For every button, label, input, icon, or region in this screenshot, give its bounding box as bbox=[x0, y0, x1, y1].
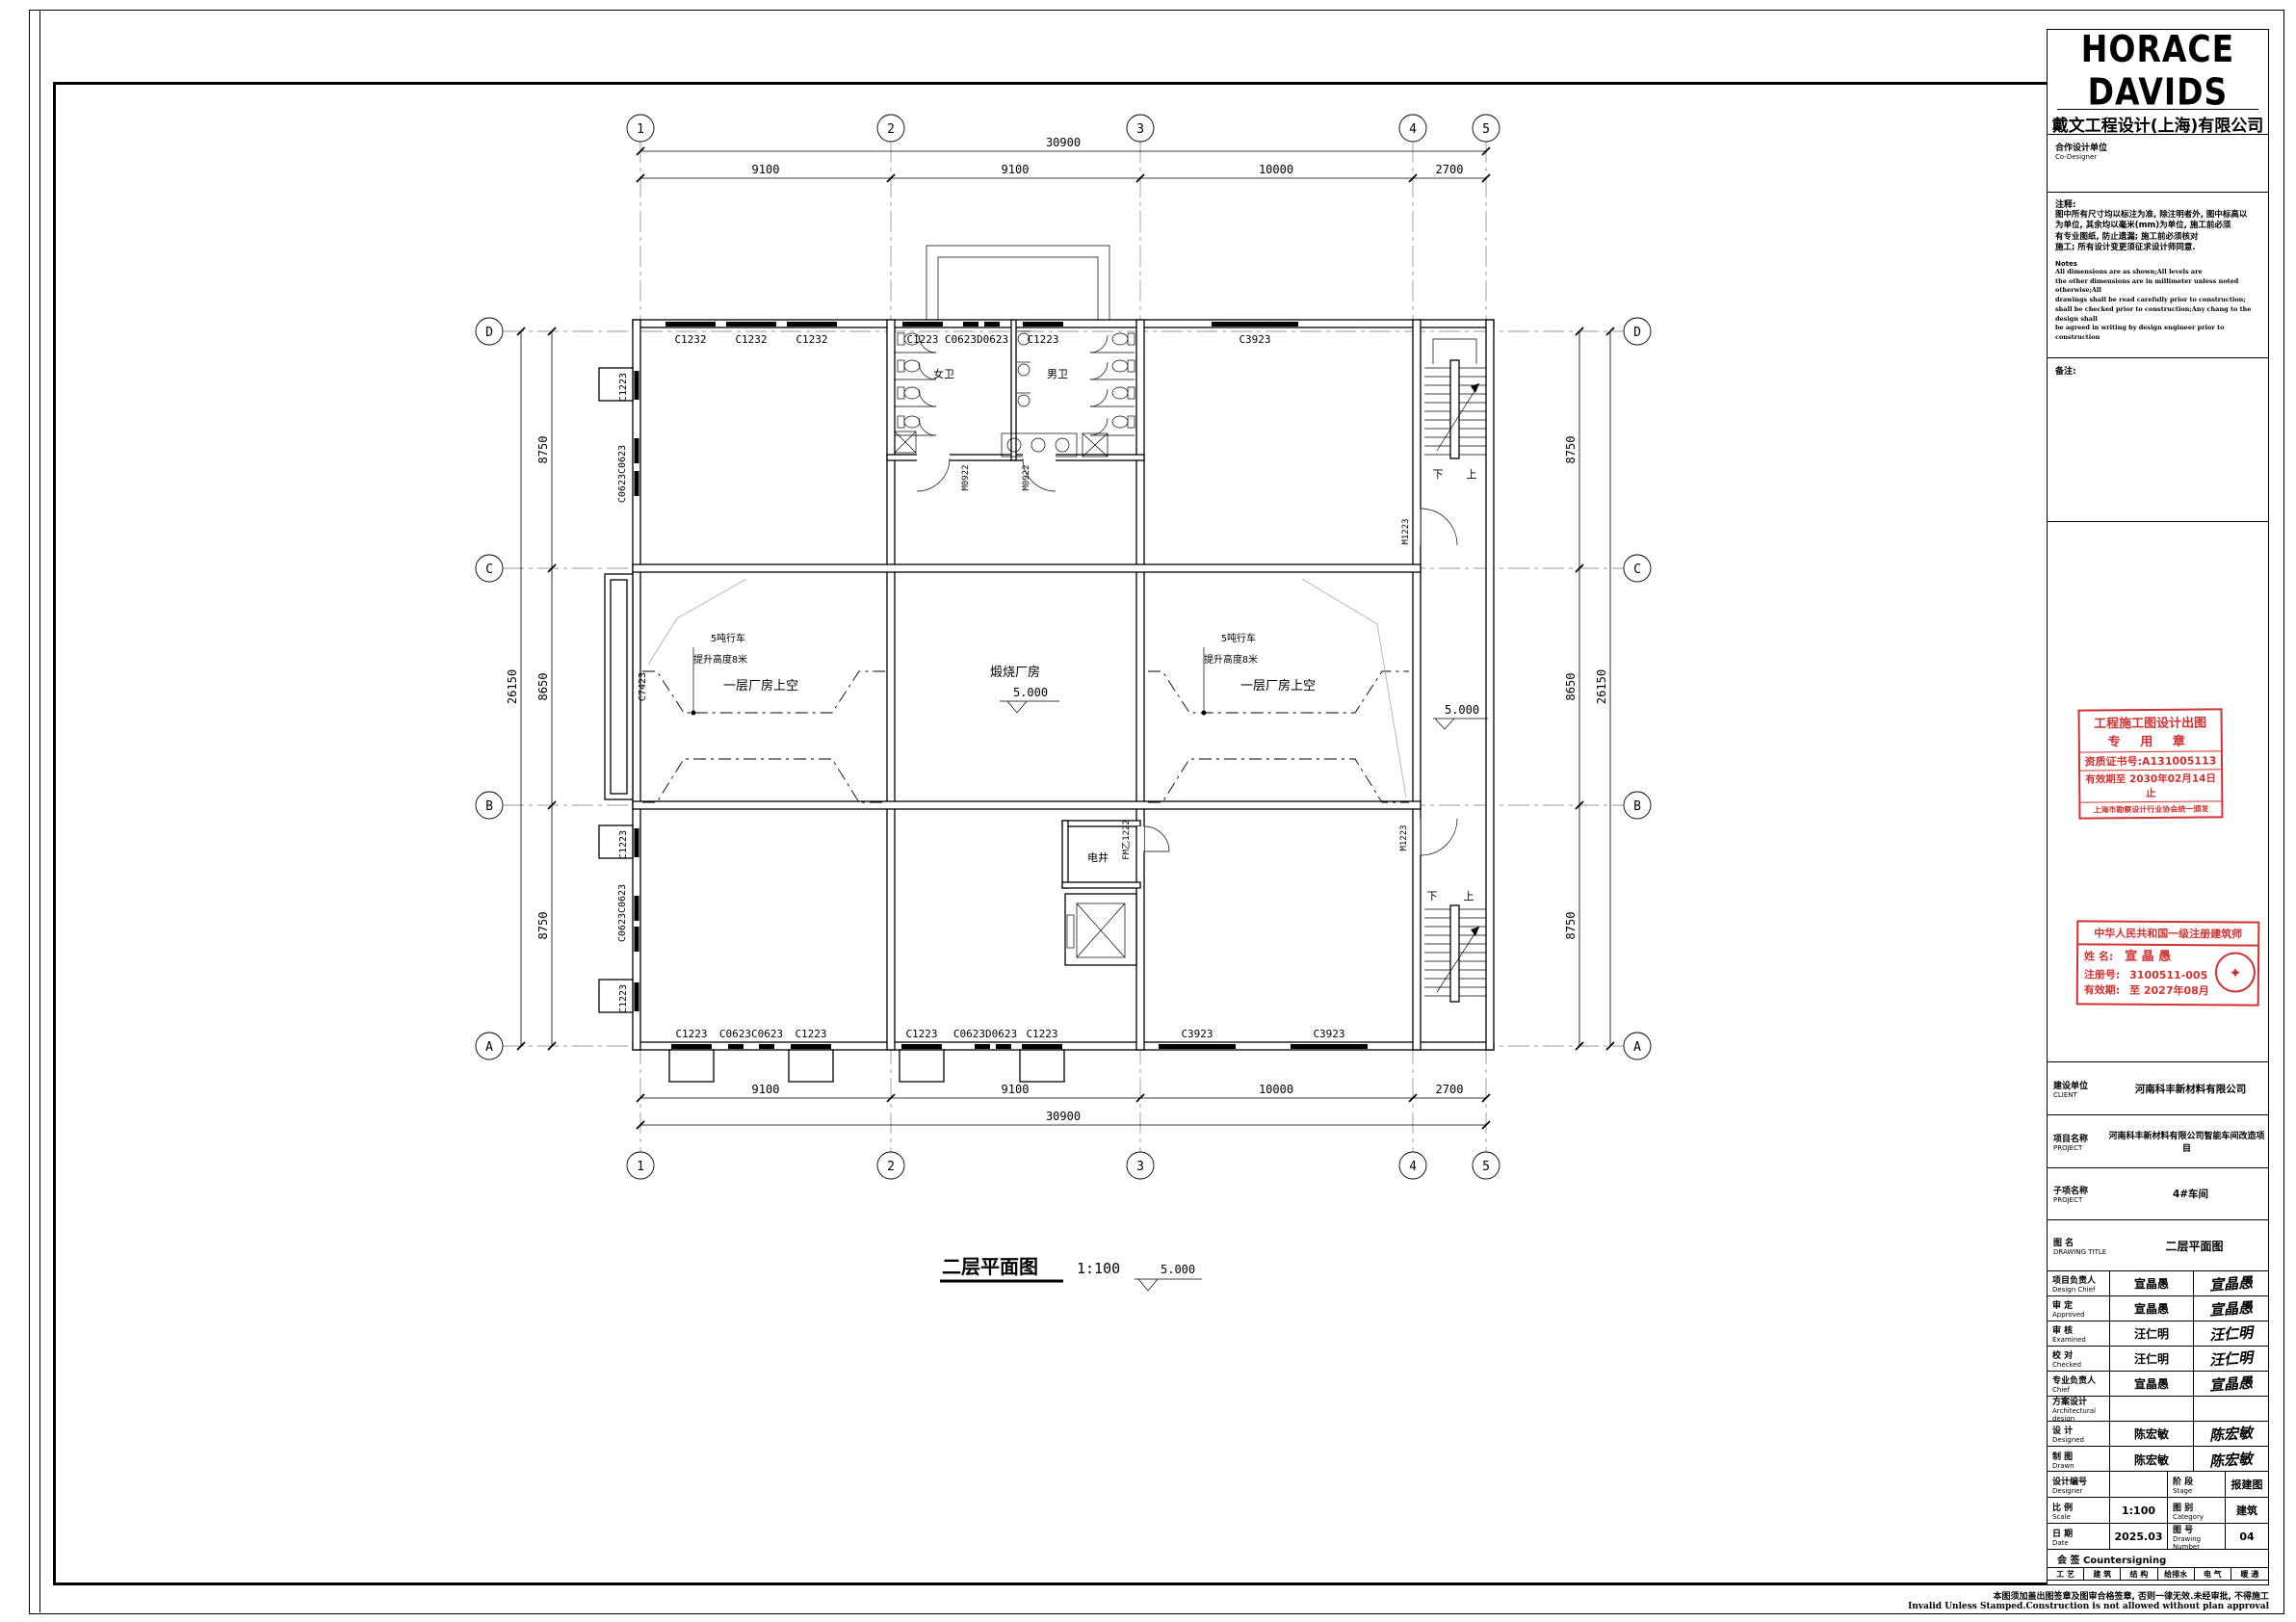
stamp1-line2: 专 用 章 bbox=[2080, 730, 2221, 751]
stamp2-valid: 至 2027年08月 bbox=[2129, 984, 2209, 998]
meta-value bbox=[2110, 1472, 2168, 1498]
crane-note: 5吨行车 bbox=[1221, 632, 1256, 644]
plan-scale: 1:100 bbox=[1077, 1260, 1120, 1277]
grid-bubble-label: A bbox=[485, 1040, 493, 1055]
crane-note: 5吨行车 bbox=[711, 632, 745, 644]
stair-bottom: 下 上 bbox=[1424, 890, 1486, 1002]
door-label: M1223 bbox=[1401, 518, 1411, 544]
notes-en-line: be agreed in writing by design engineer … bbox=[2055, 324, 2260, 343]
crane-room-right: 5吨行车 提升高度8米 一层厂房上空 bbox=[1148, 579, 1409, 802]
sign-label-cn: 方案设计 bbox=[2052, 1397, 2087, 1407]
sign-label-cn: 制 图 bbox=[2052, 1450, 2073, 1462]
door-label: M0922 bbox=[1022, 464, 1031, 490]
dim-label: 9100 bbox=[1002, 163, 1030, 176]
canopy-outline bbox=[926, 246, 1109, 324]
drawing-title-block: 图 名 DRAWING TITLE 二层平面图 bbox=[2047, 1220, 2269, 1271]
countersign-col: 给排水 bbox=[2158, 1568, 2195, 1581]
co-designer-label-cn: 合作设计单位 bbox=[2055, 141, 2260, 153]
dim-label: 26150 bbox=[1595, 669, 1608, 704]
meta-label-cn: 比 例 bbox=[2052, 1501, 2073, 1513]
countersign-col: 建 筑 bbox=[2084, 1568, 2121, 1581]
stair-top: 下 上 bbox=[1424, 339, 1486, 481]
room-label: 一层厂房上空 bbox=[723, 678, 798, 693]
window-label: C3923 bbox=[1313, 1028, 1344, 1040]
stamp2-name: 宣 晶 愚 bbox=[2125, 950, 2171, 964]
sign-label-en: Chief bbox=[2052, 1386, 2070, 1394]
countersign-title: 会 签 Countersigning bbox=[2048, 1550, 2268, 1567]
window-label: C7423 bbox=[638, 672, 648, 701]
window-label: C0623C0623 bbox=[719, 1028, 783, 1040]
stair-label: 下 bbox=[1433, 468, 1444, 481]
grid-bubble-label: 3 bbox=[1136, 122, 1144, 137]
stair-label: 上 bbox=[1464, 890, 1474, 903]
project-label-cn: 项目名称 bbox=[2053, 1132, 2105, 1144]
grid-bubble-label: 2 bbox=[887, 1160, 895, 1174]
sign-label-en: Approved bbox=[2052, 1311, 2085, 1319]
caption-level: 5.000 bbox=[1161, 1263, 1195, 1276]
subproject-block: 子项名称 PROJECT 4#车间 bbox=[2047, 1168, 2269, 1220]
footer-en: Invalid Unless Stamped.Construction is n… bbox=[1589, 1602, 2269, 1611]
window-label: C1223 bbox=[795, 1028, 826, 1040]
windows bbox=[599, 322, 1368, 1082]
signature: 宣晶愚 bbox=[2208, 1271, 2253, 1295]
plan-title: 二层平面图 bbox=[942, 1255, 1038, 1278]
company-name-cn: 戴文工程设计(上海)有限公司 bbox=[2048, 112, 2268, 136]
countersign-col: 结 构 bbox=[2121, 1568, 2157, 1581]
level-label: 5.000 bbox=[1013, 686, 1048, 699]
dim-label: 9100 bbox=[1002, 1083, 1030, 1096]
window-label: C1223 bbox=[1026, 1028, 1057, 1040]
room-label: 男卫 bbox=[1047, 368, 1068, 380]
meta-label-en: Stage bbox=[2173, 1487, 2192, 1495]
dim-label: 8750 bbox=[1564, 436, 1578, 464]
sign-name: 汪仁明 bbox=[2110, 1321, 2194, 1347]
level-label: 5.000 bbox=[1445, 703, 1479, 717]
sign-label-en: Examined bbox=[2052, 1336, 2086, 1344]
stamp2-name-label: 姓 名: bbox=[2084, 950, 2113, 962]
signature: 陈宏敏 bbox=[2208, 1448, 2253, 1471]
window-label: C0623D0623 bbox=[953, 1028, 1017, 1040]
meta-label-cn: 日 期 bbox=[2052, 1527, 2073, 1539]
notes-en-line: shall be checked prior to construction;A… bbox=[2055, 305, 2260, 325]
client-label-cn: 建设单位 bbox=[2053, 1079, 2113, 1091]
meta-label-cn: 图 号 bbox=[2173, 1524, 2193, 1535]
signature-table: 项目负责人Design Chief 宣晶愚 宣晶愚 审 定Approved 宣晶… bbox=[2047, 1271, 2269, 1472]
stamp2-valid-label: 有效期: bbox=[2084, 984, 2120, 997]
dim-label: 8750 bbox=[536, 436, 550, 464]
sign-name: 汪仁明 bbox=[2110, 1347, 2194, 1372]
architect-seal-icon: ✦ bbox=[2215, 952, 2256, 992]
grid-bubble-label: B bbox=[1633, 799, 1641, 814]
client-value: 河南科丰新材料有限公司 bbox=[2113, 1082, 2268, 1096]
window-label: C0623C0623 bbox=[617, 445, 628, 503]
grid-bubble-label: 4 bbox=[1409, 122, 1417, 137]
project-value: 河南科丰新材料有限公司智能车间改造项目 bbox=[2105, 1129, 2268, 1154]
meta-value: 1:100 bbox=[2110, 1498, 2168, 1524]
room-label: 煅烧厂房 bbox=[990, 665, 1040, 680]
window-label: C0623C0623 bbox=[617, 884, 628, 942]
door-label: FM乙1222 bbox=[1121, 820, 1132, 860]
dim-label: 2700 bbox=[1436, 1083, 1464, 1096]
sign-name: 宣晶愚 bbox=[2110, 1271, 2194, 1296]
grid-bubble-label: 5 bbox=[1482, 122, 1490, 137]
stamp1-line5: 上海市勘察设计行业协会统一颁发 bbox=[2080, 800, 2221, 817]
sign-label-en: Checked bbox=[2052, 1361, 2081, 1369]
grid-bubble-label: C bbox=[1633, 562, 1641, 577]
drawing-sheet: 30900 9100 9100 10000 2700 9100 9100 100… bbox=[0, 0, 2296, 1622]
meta-label-cn: 阶 段 bbox=[2173, 1475, 2193, 1487]
meta-label-en: Category bbox=[2173, 1513, 2204, 1521]
drawing-title-value: 二层平面图 bbox=[2121, 1238, 2268, 1254]
countersign-col: 暖 通 bbox=[2231, 1568, 2268, 1581]
signature: 宣晶愚 bbox=[2208, 1296, 2253, 1320]
dim-label: 10000 bbox=[1259, 1083, 1293, 1096]
window-label: C1232 bbox=[674, 333, 706, 346]
notes-cn-line: 图中所有尺寸均以标注为准, 除注明者外, 图中标高以 bbox=[2055, 210, 2260, 221]
door-label: M1223 bbox=[1399, 824, 1409, 850]
dim-label: 30900 bbox=[1046, 136, 1081, 149]
dim-label: 8650 bbox=[536, 673, 550, 701]
stamp2-reg: 3100511-005 bbox=[2129, 969, 2207, 982]
elevator-block: 电井 FM乙1222 bbox=[1062, 820, 1169, 965]
grid-bubble-label: D bbox=[485, 326, 493, 340]
window-label: C0623D0623 bbox=[945, 333, 1008, 346]
dim-label: 8650 bbox=[1564, 673, 1578, 701]
room-label: 电井 bbox=[1087, 850, 1109, 864]
notes-en-line: the other dimensions are in millimeter u… bbox=[2055, 277, 2260, 297]
notes-title-en: Notes bbox=[2055, 260, 2260, 268]
meta-value: 报建图 bbox=[2226, 1472, 2268, 1498]
grid-bubble-label: 1 bbox=[637, 1160, 644, 1174]
notes-en-line: All dimensions are as shown;All levels a… bbox=[2055, 268, 2260, 277]
window-label: C1223 bbox=[618, 984, 629, 1013]
dimensions: 30900 9100 9100 10000 2700 9100 9100 100… bbox=[506, 136, 1614, 1129]
sign-name: 陈宏敏 bbox=[2110, 1447, 2194, 1472]
grid-bubble-label: 3 bbox=[1136, 1160, 1144, 1174]
grid-bubble-label: 2 bbox=[887, 122, 895, 137]
meta-label-cn: 图 别 bbox=[2173, 1501, 2193, 1513]
sign-name bbox=[2110, 1397, 2194, 1422]
window-label: C1232 bbox=[735, 333, 767, 346]
sheet-footer: 本图须加盖出图签章及图审合格签章, 否则一律无效.未经审批, 不得施工 Inva… bbox=[1589, 1589, 2269, 1611]
meta-value: 建筑 bbox=[2226, 1498, 2268, 1524]
window-label: C3923 bbox=[1181, 1028, 1213, 1040]
sign-label-cn: 项目负责人 bbox=[2052, 1273, 2096, 1286]
stamp2-title: 中华人民共和国一级注册建筑师 bbox=[2078, 922, 2257, 946]
window-label: C1223 bbox=[675, 1028, 707, 1040]
grid-bubble-label: A bbox=[1633, 1040, 1641, 1055]
notes-en-line: drawings shall be read carefully prior t… bbox=[2055, 296, 2260, 305]
sign-label-en: Designed bbox=[2052, 1436, 2084, 1444]
project-label-en: PROJECT bbox=[2053, 1144, 2105, 1152]
architect-stamp: 中华人民共和国一级注册建筑师 姓 名: 宣 晶 愚 注册号: 3100511-0… bbox=[2076, 920, 2260, 1006]
client-block: 建设单位 CLIENT 河南科丰新材料有限公司 bbox=[2047, 1062, 2269, 1115]
grid-bubble-label: D bbox=[1633, 326, 1641, 340]
countersign-col: 电 气 bbox=[2195, 1568, 2231, 1581]
dim-label: 30900 bbox=[1046, 1110, 1081, 1123]
meta-label-cn: 设计编号 bbox=[2052, 1475, 2087, 1487]
remark-block: 备注: bbox=[2047, 358, 2269, 522]
window-label: C1223 bbox=[618, 373, 629, 402]
meta-label-en: Date bbox=[2052, 1539, 2069, 1547]
dim-label: 2700 bbox=[1436, 163, 1464, 176]
signature: 汪仁明 bbox=[2208, 1321, 2253, 1345]
sign-label-cn: 专业负责人 bbox=[2052, 1373, 2096, 1386]
sign-label-en: Drawn bbox=[2052, 1462, 2074, 1470]
grid-bubble-label: B bbox=[485, 799, 493, 814]
remark-label: 备注: bbox=[2055, 364, 2260, 377]
window-label: C1223 bbox=[906, 333, 938, 346]
notes-block: 注释: 图中所有尺寸均以标注为准, 除注明者外, 图中标高以 为单位, 其余均以… bbox=[2047, 193, 2269, 358]
signature: 宣晶愚 bbox=[2208, 1372, 2253, 1395]
notes-cn-line: 为单位, 其余均以毫米(mm)为单位, 施工前必须 bbox=[2055, 221, 2260, 231]
dim-label: 26150 bbox=[506, 669, 519, 704]
grid-bubbles: 1 2 3 4 5 1 2 3 4 5 D C B A D C B A bbox=[476, 115, 1651, 1179]
window-label: C1223 bbox=[905, 1028, 937, 1040]
meta-value: 2025.03 bbox=[2110, 1524, 2168, 1550]
grid-bubble-label: 5 bbox=[1482, 1160, 1490, 1174]
meta-label-en: Drawing Number bbox=[2173, 1535, 2225, 1550]
stair-label: 下 bbox=[1427, 890, 1438, 903]
meta-label-en: Scale bbox=[2052, 1513, 2071, 1521]
sign-label-cn: 审 定 bbox=[2052, 1298, 2073, 1311]
stamp1-line3: 资质证书号:A131005113 bbox=[2080, 750, 2221, 770]
room-label: 女卫 bbox=[933, 367, 954, 380]
design-institute-stamp: 工程施工图设计出图 专 用 章 资质证书号:A131005113 有效期至 20… bbox=[2078, 708, 2224, 819]
subproject-value: 4#车间 bbox=[2113, 1187, 2268, 1201]
meta-table: 设计编号Designer 阶 段Stage 报建图 比 例Scale 1:100… bbox=[2047, 1472, 2269, 1550]
plan-caption: 二层平面图 1:100 5.000 bbox=[940, 1255, 1202, 1291]
dim-label: 10000 bbox=[1259, 163, 1293, 176]
window-label: C1232 bbox=[796, 333, 827, 346]
sign-label-en: Design Chief bbox=[2052, 1286, 2095, 1294]
notes-cn-line: 施工; 所有设计变更须征求设计师同意. bbox=[2055, 243, 2260, 253]
sign-label-cn: 设 计 bbox=[2052, 1424, 2073, 1436]
sign-name: 宣晶愚 bbox=[2110, 1296, 2194, 1321]
meta-label-en: Designer bbox=[2052, 1487, 2082, 1495]
floor-plan: 30900 9100 9100 10000 2700 9100 9100 100… bbox=[0, 0, 2296, 1622]
stamp1-line4: 有效期至 2030年02月14日止 bbox=[2080, 769, 2221, 801]
notes-title-cn: 注释: bbox=[2055, 197, 2260, 210]
subproject-label-en: PROJECT bbox=[2053, 1196, 2113, 1204]
project-block: 项目名称 PROJECT 河南科丰新材料有限公司智能车间改造项目 bbox=[2047, 1115, 2269, 1168]
dim-label: 9100 bbox=[752, 163, 780, 176]
meta-value: 04 bbox=[2226, 1524, 2268, 1550]
drawing-title-label-cn: 图 名 bbox=[2053, 1236, 2121, 1248]
co-designer-block: 合作设计单位 Co-Designer bbox=[2047, 135, 2269, 193]
stamp2-reg-label: 注册号: bbox=[2084, 968, 2120, 981]
dim-label: 8750 bbox=[536, 912, 550, 940]
room-label: 一层厂房上空 bbox=[1240, 678, 1316, 693]
signature: 陈宏敏 bbox=[2208, 1422, 2253, 1445]
client-label-en: CLIENT bbox=[2053, 1091, 2113, 1099]
countersign-col: 工 艺 bbox=[2048, 1568, 2084, 1581]
sign-name: 陈宏敏 bbox=[2110, 1422, 2194, 1447]
crane-note: 提升高度8米 bbox=[1204, 653, 1258, 666]
signature: 汪仁明 bbox=[2208, 1347, 2253, 1370]
countersign-block: 会 签 Countersigning 工 艺 建 筑 结 构 给排水 电 气 暖… bbox=[2047, 1550, 2269, 1585]
dim-label: 9100 bbox=[752, 1083, 780, 1096]
stair-label: 上 bbox=[1467, 468, 1477, 481]
grid-bubble-label: 4 bbox=[1409, 1160, 1417, 1174]
co-designer-label-en: Co-Designer bbox=[2055, 153, 2260, 161]
sign-name: 宣晶愚 bbox=[2110, 1372, 2194, 1397]
window-label: C3923 bbox=[1239, 333, 1270, 346]
logo-block: HORACE DAVIDS 戴文工程设计(上海)有限公司 Davids Engi… bbox=[2047, 29, 2269, 135]
window-label: C1223 bbox=[618, 830, 629, 859]
grid-bubble-label: 1 bbox=[637, 122, 644, 137]
window-label: C1223 bbox=[1027, 333, 1058, 346]
notes-cn-line: 有专业图纸, 防止遗漏; 施工前必须核对 bbox=[2055, 232, 2260, 243]
crane-note: 提升高度8米 bbox=[693, 653, 747, 666]
footer-cn: 本图须加盖出图签章及图审合格签章, 否则一律无效.未经审批, 不得施工 bbox=[1589, 1589, 2269, 1602]
dim-label: 8750 bbox=[1564, 912, 1578, 940]
subproject-label-cn: 子项名称 bbox=[2053, 1184, 2113, 1196]
sign-label-en: Architectural design bbox=[2052, 1407, 2109, 1422]
sign-label-cn: 校 对 bbox=[2052, 1348, 2073, 1361]
drawing-title-label-en: DRAWING TITLE bbox=[2053, 1248, 2121, 1256]
sign-label-cn: 审 核 bbox=[2052, 1323, 2073, 1336]
company-logo: HORACE DAVIDS bbox=[2048, 27, 2268, 114]
grid-bubble-label: C bbox=[485, 562, 493, 577]
crane-room-left: 5吨行车 提升高度8米 一层厂房上空 bbox=[642, 579, 885, 802]
stamp1-line1: 工程施工图设计出图 bbox=[2080, 710, 2221, 731]
door-label: M0922 bbox=[961, 464, 971, 490]
